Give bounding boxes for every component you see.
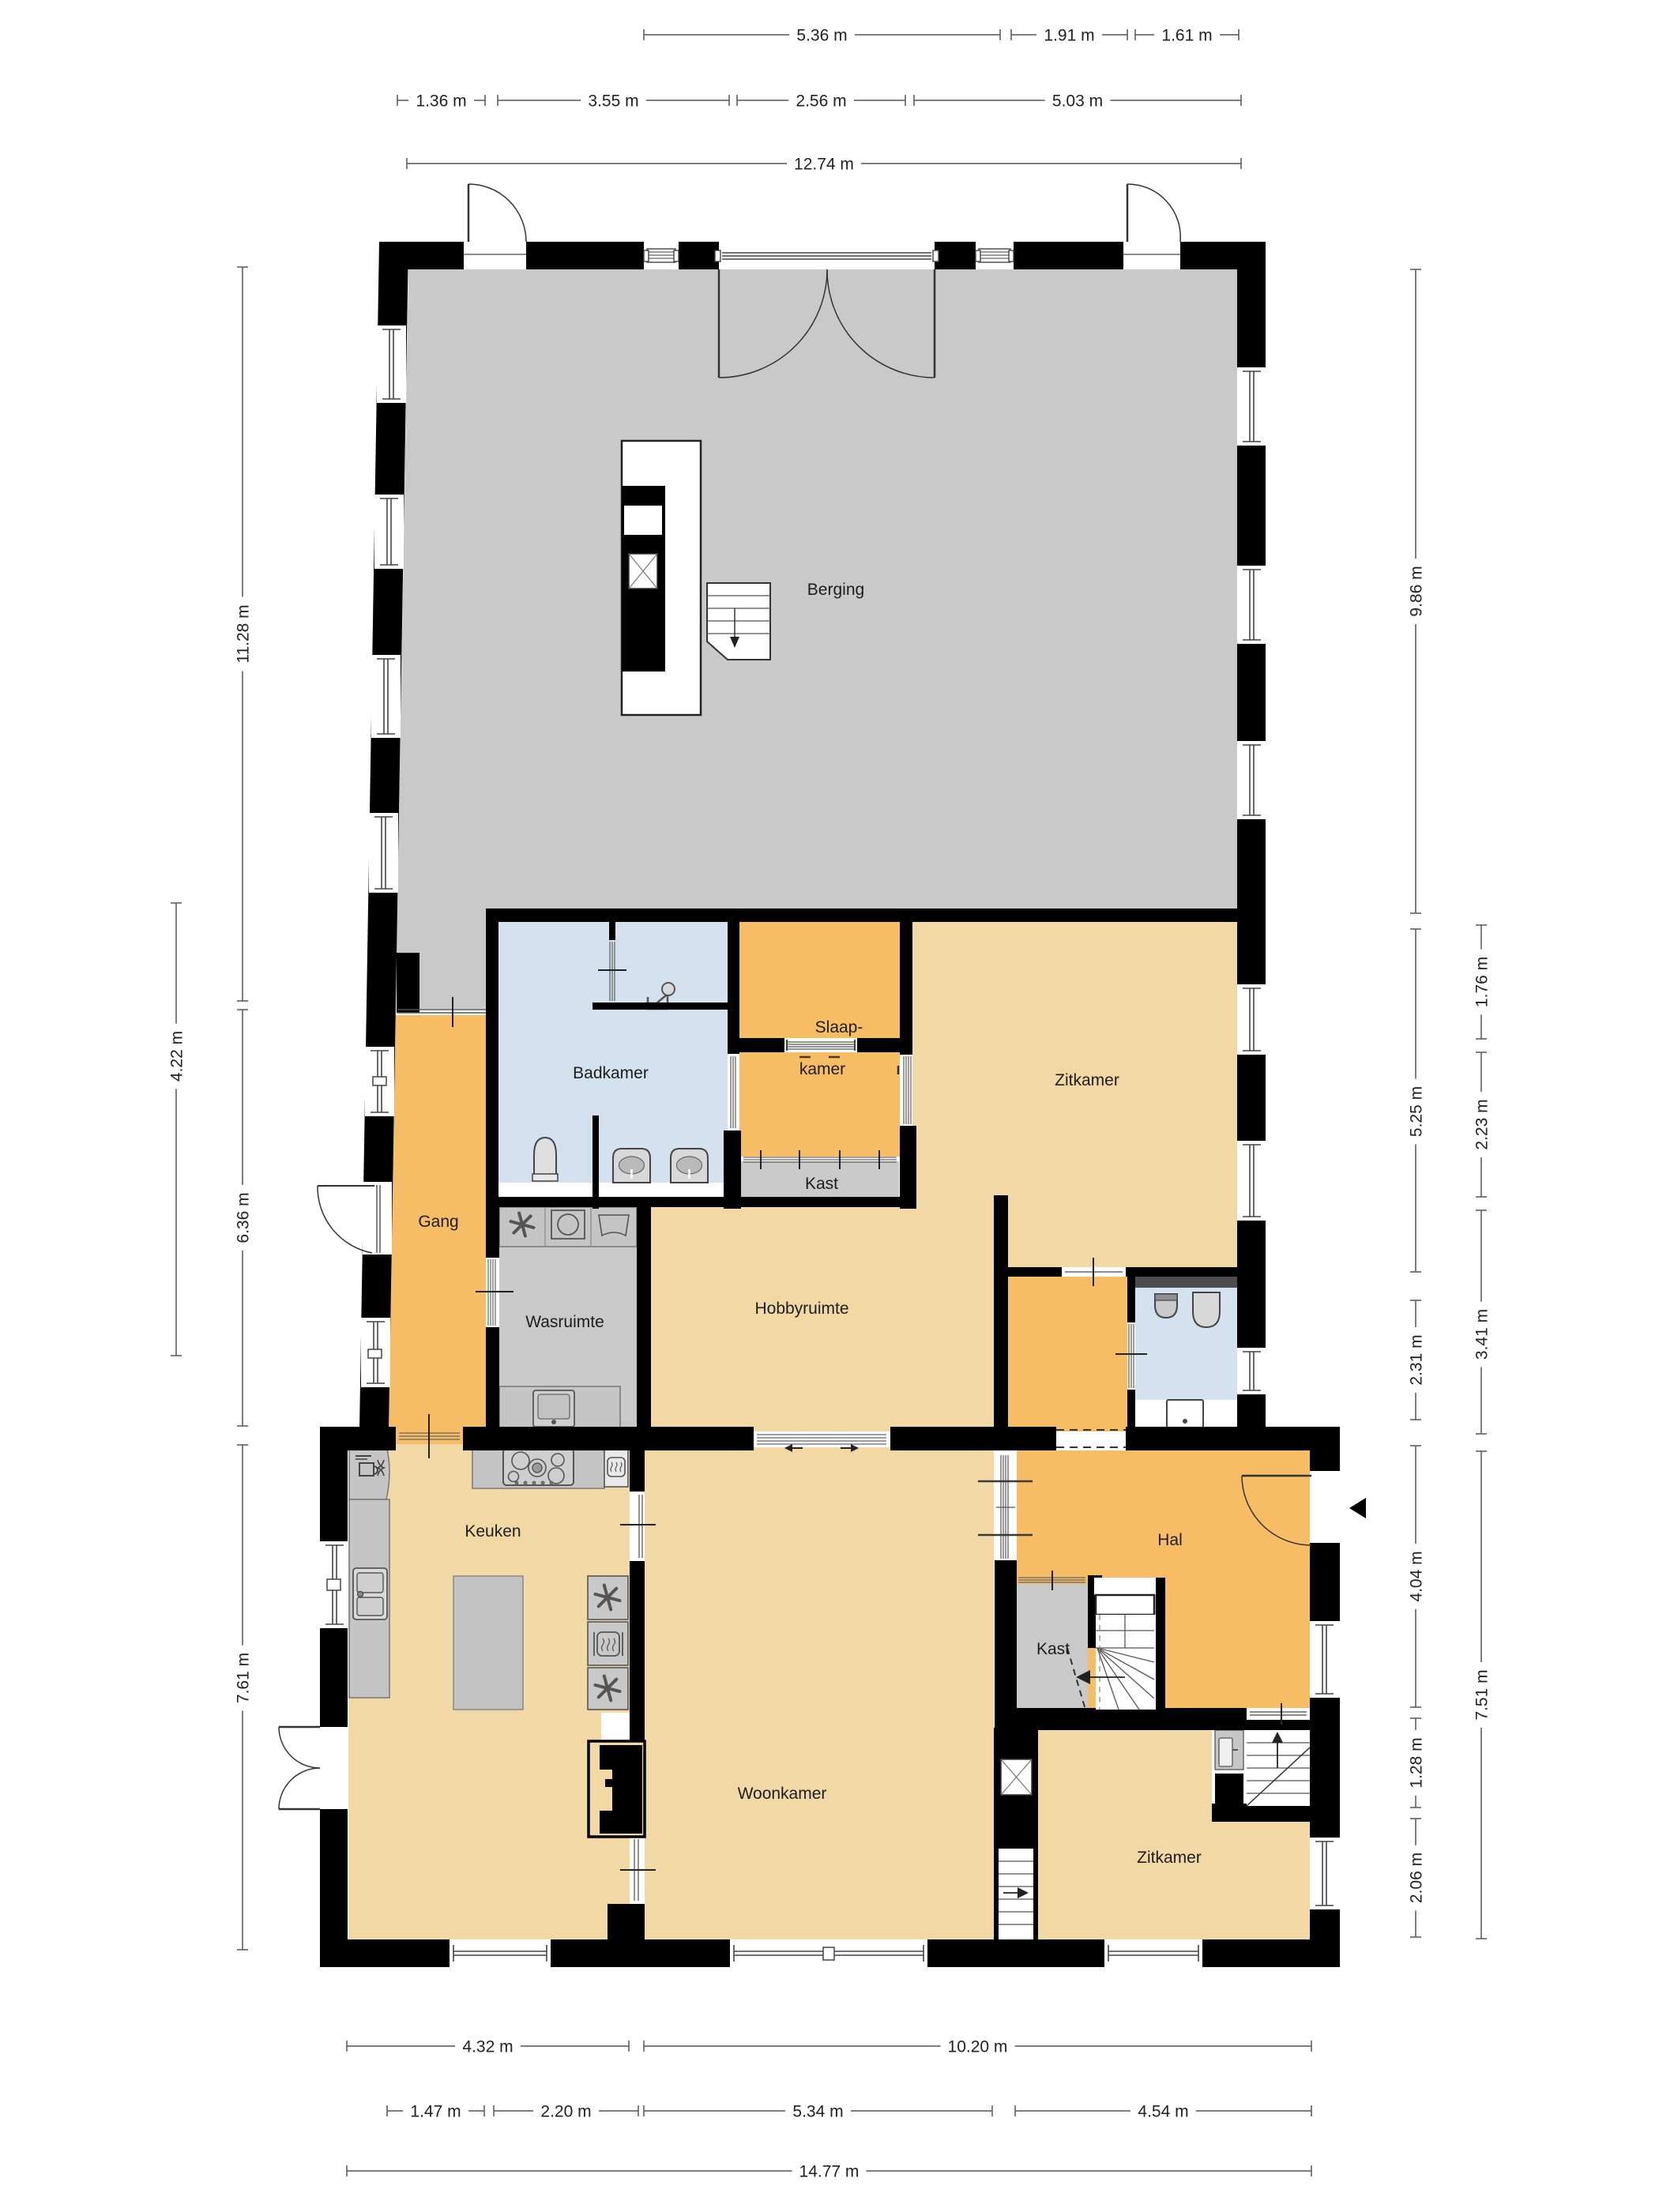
svg-text:Kast: Kast xyxy=(1036,1640,1070,1658)
svg-text:1.36 m: 1.36 m xyxy=(416,92,466,110)
svg-text:kamer: kamer xyxy=(799,1060,845,1078)
svg-text:Gang: Gang xyxy=(418,1213,458,1231)
svg-text:14.77 m: 14.77 m xyxy=(799,2162,860,2180)
svg-text:1.76 m: 1.76 m xyxy=(1473,957,1491,1007)
svg-text:4.22 m: 4.22 m xyxy=(167,1031,186,1082)
svg-text:2.56 m: 2.56 m xyxy=(796,92,846,110)
svg-text:5.03 m: 5.03 m xyxy=(1052,92,1103,110)
svg-text:9.86 m: 9.86 m xyxy=(1407,566,1425,616)
svg-text:6.36 m: 6.36 m xyxy=(234,1192,252,1243)
svg-text:Wasruimte: Wasruimte xyxy=(525,1313,604,1331)
svg-text:2.23 m: 2.23 m xyxy=(1473,1099,1491,1149)
svg-text:Kast: Kast xyxy=(805,1175,838,1193)
svg-text:5.25 m: 5.25 m xyxy=(1407,1086,1425,1137)
svg-text:1.28 m: 1.28 m xyxy=(1407,1737,1425,1788)
svg-text:Zitkamer: Zitkamer xyxy=(1055,1071,1119,1089)
svg-text:2.31 m: 2.31 m xyxy=(1407,1334,1425,1385)
svg-text:Hal: Hal xyxy=(1157,1531,1183,1549)
svg-text:Berging: Berging xyxy=(807,581,864,599)
svg-text:1.91 m: 1.91 m xyxy=(1044,26,1094,44)
svg-text:2.20 m: 2.20 m xyxy=(540,2102,591,2120)
svg-text:Slaap-: Slaap- xyxy=(815,1018,863,1036)
svg-text:Badkamer: Badkamer xyxy=(573,1064,649,1082)
svg-text:Zitkamer: Zitkamer xyxy=(1137,1849,1202,1867)
svg-text:1.47 m: 1.47 m xyxy=(410,2102,461,2120)
svg-text:11.28 m: 11.28 m xyxy=(234,604,252,663)
svg-text:10.20 m: 10.20 m xyxy=(948,2037,1008,2056)
svg-text:4.54 m: 4.54 m xyxy=(1138,2102,1188,2120)
svg-text:5.34 m: 5.34 m xyxy=(792,2102,843,2120)
svg-text:2.06 m: 2.06 m xyxy=(1407,1853,1425,1903)
svg-text:Woonkamer: Woonkamer xyxy=(738,1785,827,1803)
svg-text:Hobbyruimte: Hobbyruimte xyxy=(754,1300,848,1318)
svg-text:4.32 m: 4.32 m xyxy=(462,2037,513,2056)
svg-text:7.51 m: 7.51 m xyxy=(1473,1669,1491,1720)
svg-text:1.61 m: 1.61 m xyxy=(1161,26,1212,44)
svg-text:4.04 m: 4.04 m xyxy=(1407,1551,1425,1601)
svg-text:7.61 m: 7.61 m xyxy=(234,1653,252,1703)
svg-text:5.36 m: 5.36 m xyxy=(796,26,847,44)
svg-text:12.74 m: 12.74 m xyxy=(794,155,854,173)
svg-text:3.41 m: 3.41 m xyxy=(1473,1309,1491,1360)
svg-text:Keuken: Keuken xyxy=(465,1522,521,1540)
svg-text:3.55 m: 3.55 m xyxy=(588,92,638,110)
